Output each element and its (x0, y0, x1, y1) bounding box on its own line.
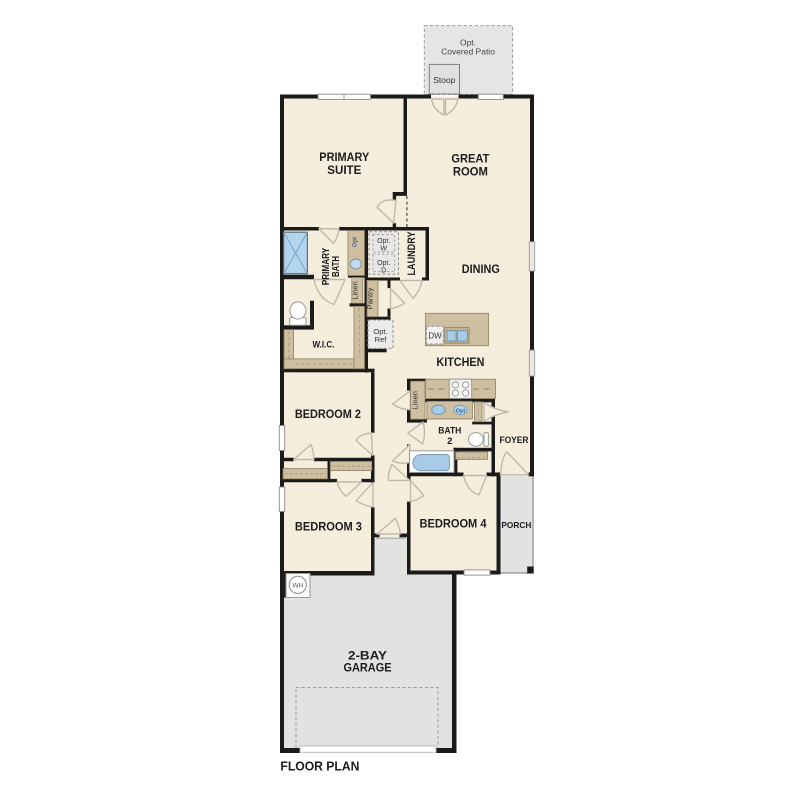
svg-text:FOYER: FOYER (500, 435, 529, 446)
svg-text:Stoop: Stoop (433, 75, 455, 85)
svg-text:SUITE: SUITE (327, 165, 361, 177)
svg-text:W: W (380, 246, 387, 253)
svg-text:Pantry: Pantry (366, 287, 375, 309)
svg-text:Linen: Linen (411, 391, 420, 409)
svg-text:Opt: Opt (456, 408, 466, 414)
svg-text:GARAGE: GARAGE (344, 663, 392, 675)
svg-text:Ref: Ref (375, 335, 388, 344)
svg-text:2: 2 (447, 436, 452, 447)
svg-text:DINING: DINING (462, 264, 500, 276)
svg-text:D: D (381, 268, 386, 275)
svg-text:ROOM: ROOM (453, 167, 488, 179)
svg-text:Opt: Opt (353, 237, 359, 247)
svg-text:W.I.C.: W.I.C. (313, 340, 335, 350)
svg-text:BATH: BATH (331, 256, 342, 277)
svg-text:GREAT: GREAT (451, 154, 489, 166)
svg-text:LAUNDRY: LAUNDRY (406, 231, 418, 276)
svg-text:KITCHEN: KITCHEN (436, 357, 484, 369)
svg-text:Opt.: Opt. (377, 238, 390, 245)
svg-text:BEDROOM 2: BEDROOM 2 (295, 409, 361, 421)
svg-text:BATH: BATH (438, 425, 461, 436)
svg-text:WH: WH (292, 582, 303, 589)
svg-text:BEDROOM 4: BEDROOM 4 (420, 519, 488, 531)
svg-text:Linen: Linen (350, 281, 359, 299)
svg-text:2-BAY: 2-BAY (348, 651, 387, 663)
svg-text:Opt.: Opt. (377, 260, 390, 267)
svg-text:BEDROOM 3: BEDROOM 3 (295, 522, 362, 534)
svg-text:DW: DW (428, 332, 442, 341)
svg-text:FLOOR PLAN: FLOOR PLAN (280, 759, 359, 774)
svg-text:PRIMARY: PRIMARY (319, 152, 369, 164)
svg-text:PORCH: PORCH (501, 520, 531, 530)
svg-text:Covered Patio: Covered Patio (441, 47, 495, 57)
